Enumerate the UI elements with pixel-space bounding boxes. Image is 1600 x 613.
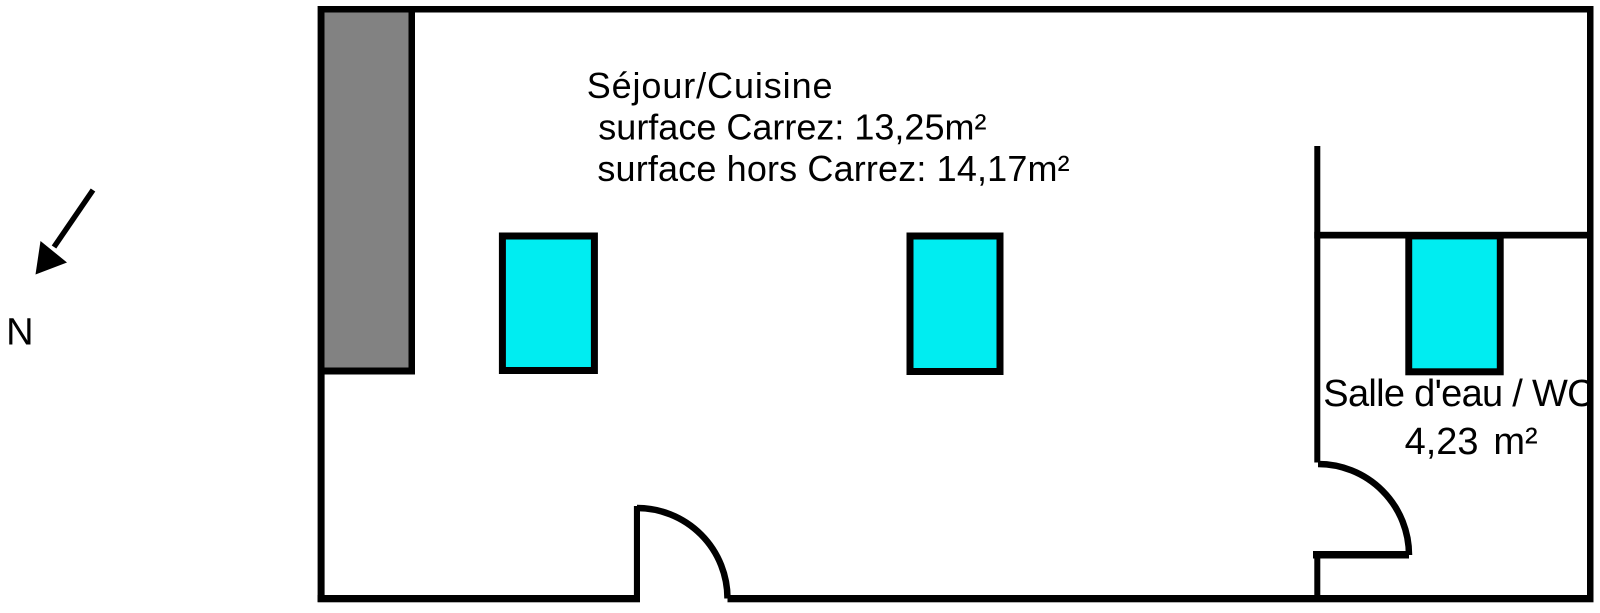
svg-text:4,23: 4,23 xyxy=(1405,421,1479,463)
svg-text:Salle d'eau / WC: Salle d'eau / WC xyxy=(1323,373,1594,415)
svg-text:m²: m² xyxy=(1493,421,1537,463)
svg-text:surface Carrez: 13,25m²: surface Carrez: 13,25m² xyxy=(598,107,986,148)
svg-text:N: N xyxy=(6,312,33,354)
svg-text:surface hors Carrez: 14,17m²: surface hors Carrez: 14,17m² xyxy=(597,148,1069,189)
svg-text:Séjour/Cuisine: Séjour/Cuisine xyxy=(587,65,834,106)
